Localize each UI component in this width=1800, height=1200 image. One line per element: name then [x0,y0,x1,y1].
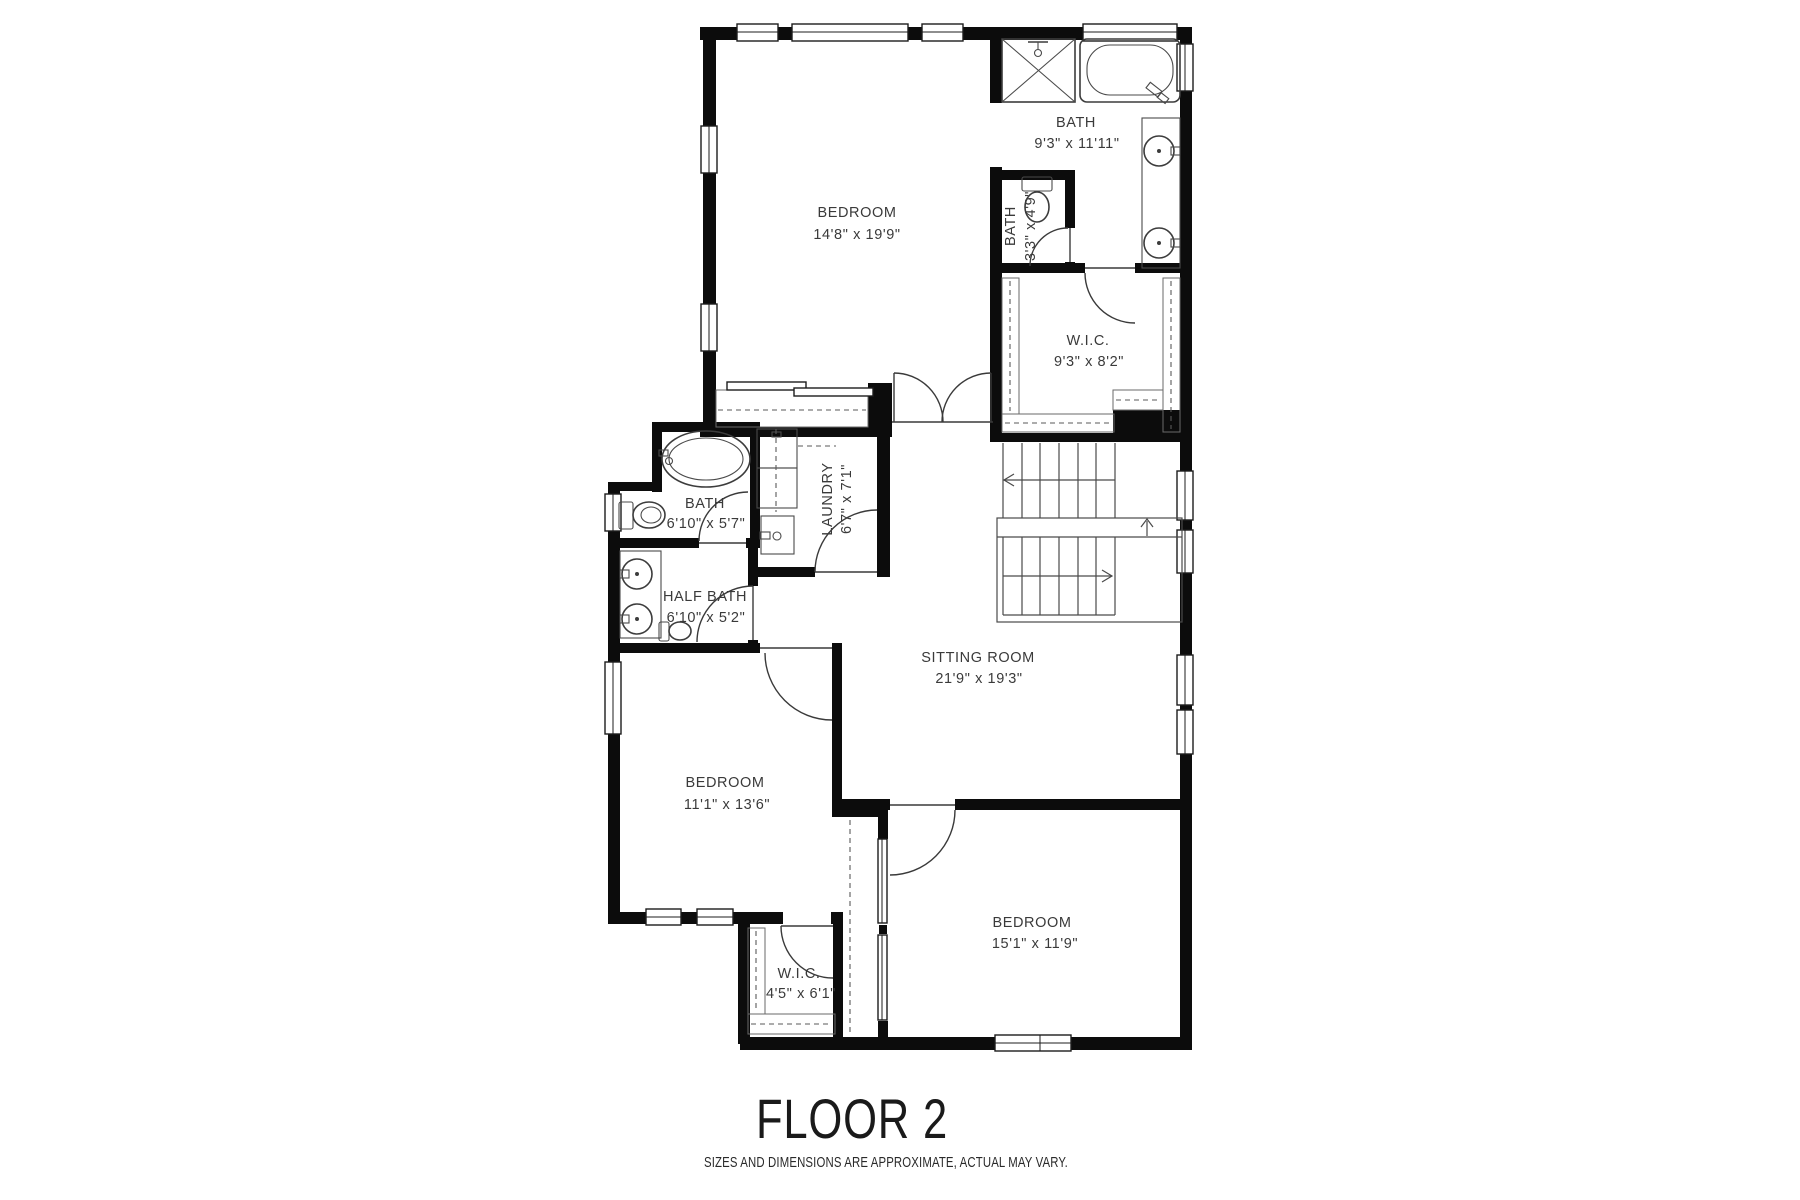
floor-plan-svg: BEDROOM 14'8" x 19'9" BATH 9'3" x 11'11"… [0,0,1800,1200]
staircase [997,443,1182,622]
room-dims-laundry: 6'7" x 7'1" [839,464,855,534]
room-dims-wic-small: 4'5" x 6'1" [766,986,836,1002]
room-label-laundry: LAUNDRY [820,462,836,535]
room-label-bath-mid: BATH [685,496,725,512]
window [922,24,963,41]
room-label-sitting-room: SITTING ROOM [921,650,1035,666]
disclaimer-text: SIZES AND DIMENSIONS ARE APPROXIMATE, AC… [704,1154,1068,1171]
room-label-bath-small: BATH [1003,206,1019,246]
double-sink-vanity [1142,118,1180,268]
floor-plan-page: BEDROOM 14'8" x 19'9" BATH 9'3" x 11'11"… [0,0,1800,1200]
washer-dryer [757,429,797,512]
room-label-bath-main: BATH [1056,115,1096,131]
bathtub [659,431,750,487]
room-dims-half-bath: 6'10" x 5'2" [667,610,746,626]
room-dims-bedroom-left: 11'1" x 13'6" [684,797,770,813]
room-dims-wic-main: 9'3" x 8'2" [1054,354,1124,370]
page-title: FLOOR 2 [756,1087,948,1150]
window [1177,471,1193,520]
walls [608,27,1192,1050]
room-dims-bedroom-top: 14'8" x 19'9" [813,227,900,243]
closet [716,382,873,427]
window [701,304,717,351]
room-label-half-bath: HALF BATH [663,589,747,605]
window [1177,710,1193,754]
door [890,805,955,875]
room-labels: BEDROOM 14'8" x 19'9" BATH 9'3" x 11'11"… [663,115,1124,1002]
room-label-wic-main: W.I.C. [1066,333,1109,349]
stair-up-arrow [1141,519,1153,536]
bathtub [1080,39,1180,103]
room-dims-bath-mid: 6'10" x 5'7" [667,516,746,532]
window [646,909,681,925]
window [737,24,778,41]
window [605,662,621,734]
window [995,1035,1071,1051]
window [1177,655,1193,705]
room-dims-bedroom-right: 15'1" x 11'9" [992,936,1078,952]
door [760,648,832,720]
stair-lower-flight [1003,537,1115,615]
room-label-bedroom-left: BEDROOM [685,775,764,791]
toilet [619,502,665,529]
door [1085,268,1135,323]
window [697,909,733,925]
window [792,24,908,41]
room-label-bedroom-top: BEDROOM [817,205,896,221]
shower [1002,39,1075,102]
room-dims-bath-main: 9'3" x 11'11" [1034,136,1119,152]
utility-sink [760,516,794,554]
window [701,126,717,173]
room-label-wic-small: W.I.C. [777,966,820,982]
sink [620,551,661,638]
double-door [892,373,993,422]
room-dims-sitting-room: 21'9" x 19'3" [935,671,1022,687]
stair-upper-flight [1003,443,1115,518]
room-dims-bath-small: 3'3" x 4'9" [1023,191,1039,261]
room-label-bedroom-right: BEDROOM [992,915,1071,931]
